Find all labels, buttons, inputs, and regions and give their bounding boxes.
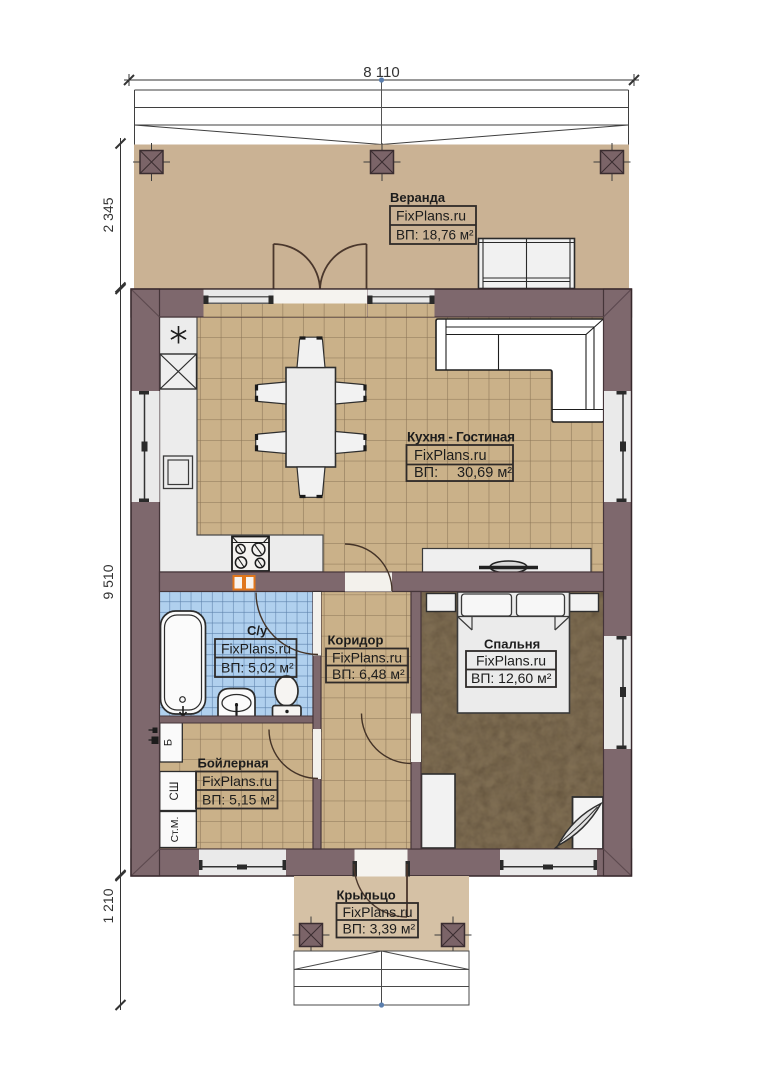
svg-text:ВП: 3,39 м²: ВП: 3,39 м² [343,921,416,937]
svg-text:Веранда: Веранда [390,190,446,205]
svg-text:Бойлерная: Бойлерная [198,756,269,771]
svg-text:8 110: 8 110 [363,64,399,81]
svg-text:FixPlans.ru: FixPlans.ru [221,641,291,657]
svg-text:FixPlans.ru: FixPlans.ru [332,650,402,666]
svg-text:Б: Б [163,739,175,746]
svg-text:FixPlans.ru: FixPlans.ru [202,773,272,789]
svg-text:FixPlans.ru: FixPlans.ru [343,904,413,920]
svg-text:С/у: С/у [247,623,268,638]
svg-text:30,69 м²: 30,69 м² [457,465,512,481]
svg-text:Коридор: Коридор [328,633,384,648]
svg-text:ВП: 5,15 м²: ВП: 5,15 м² [202,792,275,808]
svg-text:Кухня - Гостиная: Кухня - Гостиная [407,430,515,445]
svg-text:Ст.М.: Ст.М. [169,817,181,843]
svg-text:ВП:: ВП: [414,465,438,481]
svg-text:Спальня: Спальня [484,637,540,652]
svg-text:ВП: 18,76 м²: ВП: 18,76 м² [396,228,474,243]
svg-text:ВП: 5,02 м²: ВП: 5,02 м² [221,660,294,676]
svg-text:FixPlans.ru: FixPlans.ru [414,448,487,464]
svg-text:Крыльцо: Крыльцо [337,888,396,903]
svg-text:2 345: 2 345 [100,197,116,232]
svg-text:FixPlans.ru: FixPlans.ru [396,208,466,224]
svg-text:9 510: 9 510 [100,564,116,599]
svg-text:ВП: 6,48 м²: ВП: 6,48 м² [332,666,405,682]
svg-text:СШ: СШ [169,782,181,801]
svg-text:FixPlans.ru: FixPlans.ru [476,653,546,669]
svg-text:1 210: 1 210 [100,888,116,923]
svg-text:ВП: 12,60 м²: ВП: 12,60 м² [471,670,552,686]
